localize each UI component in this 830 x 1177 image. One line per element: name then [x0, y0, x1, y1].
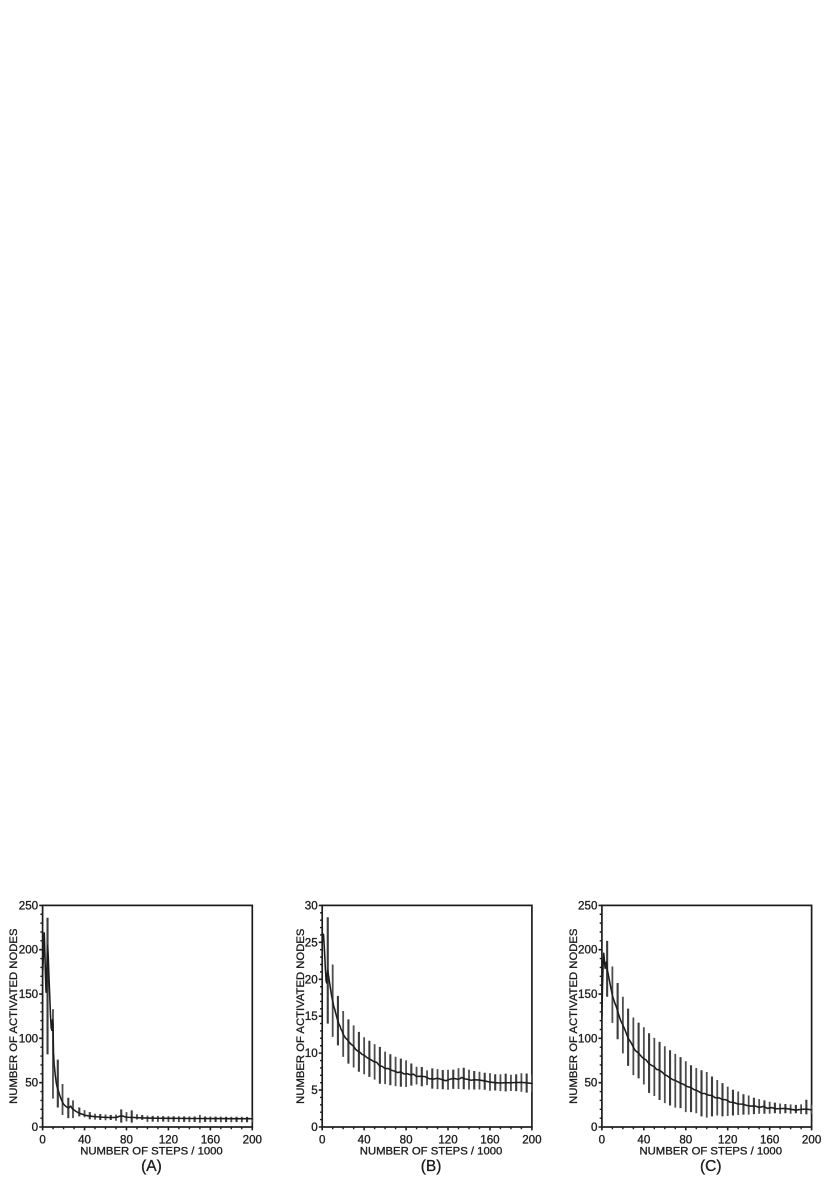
svg-text:0: 0	[319, 1133, 325, 1146]
svg-text:(A): (A)	[141, 1158, 162, 1175]
svg-text:NUMBER OF ACTIVATED NODES: NUMBER OF ACTIVATED NODES	[8, 928, 20, 1104]
svg-text:NUMBER OF STEPS / 1000: NUMBER OF STEPS / 1000	[360, 1146, 503, 1158]
svg-text:0: 0	[39, 1133, 45, 1146]
svg-text:0: 0	[591, 1121, 597, 1134]
svg-text:120: 120	[438, 1133, 457, 1146]
svg-text:NUMBER OF STEPS / 1000: NUMBER OF STEPS / 1000	[639, 1146, 782, 1158]
svg-text:0: 0	[311, 1121, 317, 1134]
svg-text:0: 0	[32, 1121, 38, 1134]
svg-text:200: 200	[522, 1133, 541, 1146]
svg-text:250: 250	[19, 899, 38, 912]
svg-text:(C): (C)	[700, 1158, 722, 1175]
svg-text:120: 120	[718, 1133, 737, 1146]
svg-text:(B): (B)	[421, 1158, 442, 1175]
svg-text:150: 150	[19, 988, 38, 1001]
svg-text:NUMBER OF ACTIVATED NODES: NUMBER OF ACTIVATED NODES	[295, 928, 307, 1104]
svg-text:160: 160	[480, 1133, 499, 1146]
svg-text:80: 80	[120, 1133, 133, 1146]
svg-text:5: 5	[311, 1084, 317, 1097]
svg-text:50: 50	[25, 1077, 38, 1090]
svg-text:200: 200	[243, 1133, 262, 1146]
svg-text:40: 40	[358, 1133, 371, 1146]
svg-text:NUMBER OF ACTIVATED NODES: NUMBER OF ACTIVATED NODES	[568, 928, 580, 1104]
svg-text:160: 160	[201, 1133, 220, 1146]
svg-text:100: 100	[578, 1032, 597, 1045]
svg-text:150: 150	[578, 988, 597, 1001]
svg-text:50: 50	[584, 1077, 597, 1090]
svg-text:NUMBER OF STEPS / 1000: NUMBER OF STEPS / 1000	[80, 1146, 223, 1158]
svg-text:120: 120	[159, 1133, 178, 1146]
svg-text:30: 30	[305, 899, 318, 912]
svg-text:40: 40	[78, 1133, 91, 1146]
svg-text:160: 160	[760, 1133, 779, 1146]
svg-text:40: 40	[637, 1133, 650, 1146]
svg-text:250: 250	[578, 899, 597, 912]
svg-text:200: 200	[19, 944, 38, 957]
svg-text:0: 0	[599, 1133, 605, 1146]
svg-text:200: 200	[802, 1133, 821, 1146]
svg-text:80: 80	[679, 1133, 692, 1146]
svg-text:200: 200	[578, 944, 597, 957]
svg-text:100: 100	[19, 1032, 38, 1045]
svg-text:80: 80	[400, 1133, 413, 1146]
